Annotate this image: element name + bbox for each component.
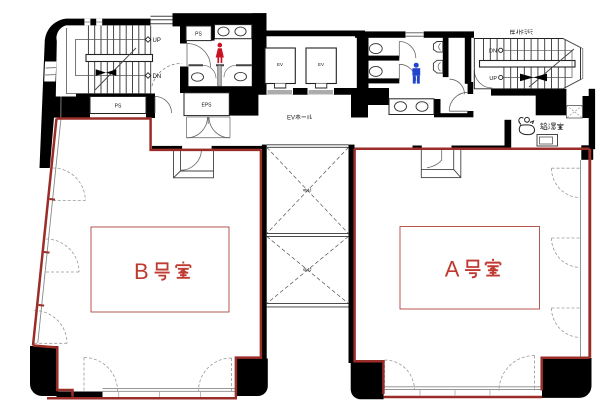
- svg-text:EV: EV: [287, 116, 295, 122]
- svg-text:UP: UP: [489, 76, 497, 82]
- svg-text:PS: PS: [195, 32, 202, 38]
- svg-text:UP: UP: [153, 38, 161, 44]
- svg-text:EV: EV: [318, 62, 324, 67]
- svg-text:DN: DN: [489, 49, 497, 55]
- svg-text:EPS: EPS: [201, 103, 212, 109]
- svg-text:EV: EV: [277, 62, 283, 67]
- svg-text:DN: DN: [153, 74, 162, 80]
- svg-text:B: B: [134, 259, 149, 284]
- svg-text:A: A: [445, 256, 460, 281]
- svg-text:PS: PS: [115, 104, 122, 110]
